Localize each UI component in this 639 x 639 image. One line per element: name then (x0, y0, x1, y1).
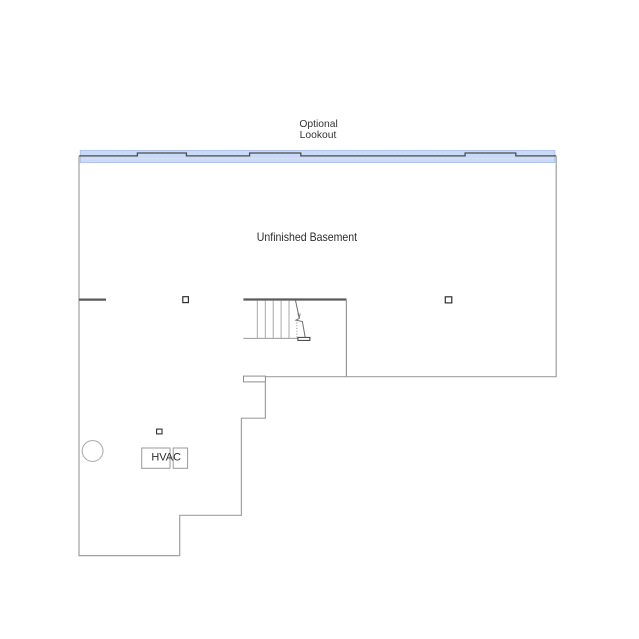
svg-text:Optional: Optional (299, 119, 337, 130)
svg-text:HVAC: HVAC (151, 451, 181, 463)
svg-text:Unfinished Basement: Unfinished Basement (257, 231, 358, 244)
svg-text:Lookout: Lookout (300, 130, 337, 141)
